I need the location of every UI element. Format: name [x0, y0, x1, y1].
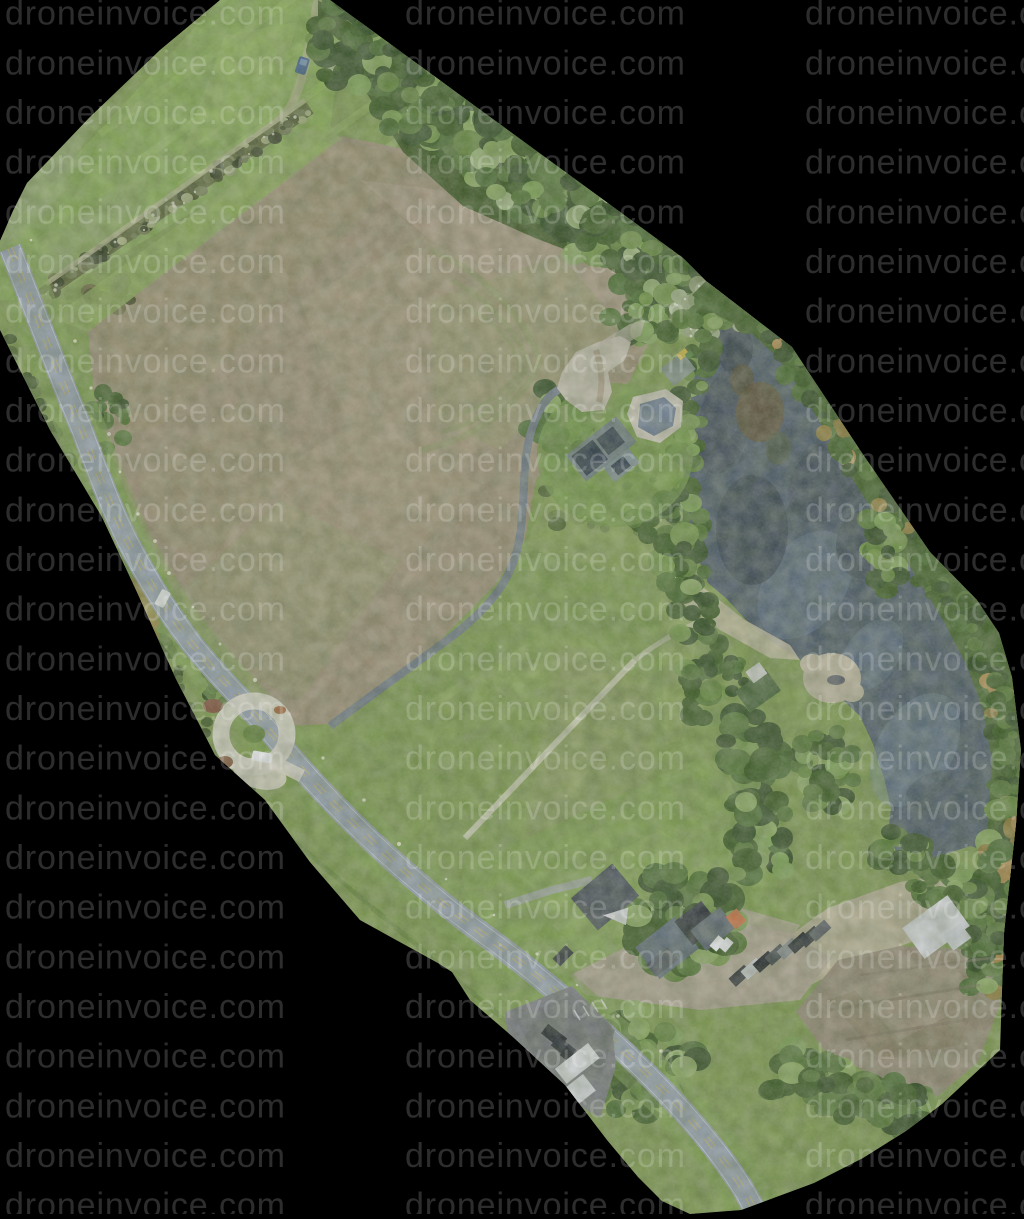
- svg-text:droneinvoice.com: droneinvoice.com: [405, 789, 686, 827]
- svg-text:droneinvoice.com: droneinvoice.com: [805, 1038, 1024, 1076]
- svg-text:droneinvoice.com: droneinvoice.com: [405, 640, 686, 678]
- svg-text:droneinvoice.com: droneinvoice.com: [405, 591, 686, 629]
- svg-text:droneinvoice.com: droneinvoice.com: [5, 541, 286, 579]
- svg-text:droneinvoice.com: droneinvoice.com: [5, 839, 286, 877]
- svg-text:droneinvoice.com: droneinvoice.com: [405, 541, 686, 579]
- svg-text:droneinvoice.com: droneinvoice.com: [5, 44, 286, 82]
- svg-text:droneinvoice.com: droneinvoice.com: [5, 789, 286, 827]
- svg-text:droneinvoice.com: droneinvoice.com: [805, 988, 1024, 1026]
- svg-text:droneinvoice.com: droneinvoice.com: [805, 640, 1024, 678]
- svg-text:droneinvoice.com: droneinvoice.com: [5, 392, 286, 430]
- svg-text:droneinvoice.com: droneinvoice.com: [805, 193, 1024, 231]
- svg-text:droneinvoice.com: droneinvoice.com: [5, 94, 286, 132]
- svg-text:droneinvoice.com: droneinvoice.com: [805, 243, 1024, 281]
- svg-text:droneinvoice.com: droneinvoice.com: [405, 442, 686, 480]
- svg-text:droneinvoice.com: droneinvoice.com: [405, 889, 686, 927]
- svg-text:droneinvoice.com: droneinvoice.com: [5, 293, 286, 331]
- svg-text:droneinvoice.com: droneinvoice.com: [405, 94, 686, 132]
- svg-text:droneinvoice.com: droneinvoice.com: [805, 491, 1024, 529]
- svg-text:droneinvoice.com: droneinvoice.com: [5, 1187, 286, 1214]
- svg-text:droneinvoice.com: droneinvoice.com: [405, 690, 686, 728]
- svg-text:droneinvoice.com: droneinvoice.com: [5, 144, 286, 182]
- svg-text:droneinvoice.com: droneinvoice.com: [805, 293, 1024, 331]
- svg-text:droneinvoice.com: droneinvoice.com: [805, 44, 1024, 82]
- svg-text:droneinvoice.com: droneinvoice.com: [405, 1187, 686, 1214]
- svg-text:droneinvoice.com: droneinvoice.com: [5, 342, 286, 380]
- svg-text:droneinvoice.com: droneinvoice.com: [5, 0, 286, 33]
- svg-text:droneinvoice.com: droneinvoice.com: [5, 1038, 286, 1076]
- svg-text:droneinvoice.com: droneinvoice.com: [5, 690, 286, 728]
- svg-text:droneinvoice.com: droneinvoice.com: [405, 293, 686, 331]
- svg-text:droneinvoice.com: droneinvoice.com: [805, 1087, 1024, 1125]
- svg-text:droneinvoice.com: droneinvoice.com: [805, 1187, 1024, 1214]
- svg-text:droneinvoice.com: droneinvoice.com: [805, 889, 1024, 927]
- svg-text:droneinvoice.com: droneinvoice.com: [805, 541, 1024, 579]
- svg-text:droneinvoice.com: droneinvoice.com: [5, 938, 286, 976]
- svg-text:droneinvoice.com: droneinvoice.com: [805, 442, 1024, 480]
- svg-text:droneinvoice.com: droneinvoice.com: [405, 342, 686, 380]
- svg-text:droneinvoice.com: droneinvoice.com: [5, 591, 286, 629]
- svg-text:droneinvoice.com: droneinvoice.com: [805, 1137, 1024, 1175]
- svg-text:droneinvoice.com: droneinvoice.com: [805, 0, 1024, 33]
- svg-text:droneinvoice.com: droneinvoice.com: [805, 789, 1024, 827]
- svg-text:droneinvoice.com: droneinvoice.com: [805, 144, 1024, 182]
- svg-text:droneinvoice.com: droneinvoice.com: [5, 491, 286, 529]
- svg-text:droneinvoice.com: droneinvoice.com: [405, 243, 686, 281]
- svg-text:droneinvoice.com: droneinvoice.com: [405, 988, 686, 1026]
- svg-text:droneinvoice.com: droneinvoice.com: [405, 193, 686, 231]
- svg-text:droneinvoice.com: droneinvoice.com: [5, 988, 286, 1026]
- svg-text:droneinvoice.com: droneinvoice.com: [5, 1137, 286, 1175]
- svg-text:droneinvoice.com: droneinvoice.com: [405, 144, 686, 182]
- svg-text:droneinvoice.com: droneinvoice.com: [5, 442, 286, 480]
- svg-text:droneinvoice.com: droneinvoice.com: [5, 740, 286, 778]
- svg-text:droneinvoice.com: droneinvoice.com: [5, 889, 286, 927]
- svg-text:droneinvoice.com: droneinvoice.com: [5, 193, 286, 231]
- svg-text:droneinvoice.com: droneinvoice.com: [405, 740, 686, 778]
- svg-text:droneinvoice.com: droneinvoice.com: [805, 740, 1024, 778]
- svg-text:droneinvoice.com: droneinvoice.com: [5, 243, 286, 281]
- svg-text:droneinvoice.com: droneinvoice.com: [405, 1137, 686, 1175]
- svg-text:droneinvoice.com: droneinvoice.com: [805, 690, 1024, 728]
- svg-text:droneinvoice.com: droneinvoice.com: [405, 839, 686, 877]
- svg-text:droneinvoice.com: droneinvoice.com: [405, 392, 686, 430]
- svg-text:droneinvoice.com: droneinvoice.com: [805, 591, 1024, 629]
- svg-text:droneinvoice.com: droneinvoice.com: [805, 392, 1024, 430]
- svg-text:droneinvoice.com: droneinvoice.com: [5, 640, 286, 678]
- svg-text:droneinvoice.com: droneinvoice.com: [405, 0, 686, 33]
- svg-text:droneinvoice.com: droneinvoice.com: [405, 938, 686, 976]
- svg-text:droneinvoice.com: droneinvoice.com: [5, 1087, 286, 1125]
- svg-text:droneinvoice.com: droneinvoice.com: [405, 491, 686, 529]
- svg-text:droneinvoice.com: droneinvoice.com: [405, 1087, 686, 1125]
- svg-text:droneinvoice.com: droneinvoice.com: [805, 342, 1024, 380]
- svg-text:droneinvoice.com: droneinvoice.com: [805, 938, 1024, 976]
- svg-text:droneinvoice.com: droneinvoice.com: [405, 44, 686, 82]
- svg-text:droneinvoice.com: droneinvoice.com: [805, 94, 1024, 132]
- svg-text:droneinvoice.com: droneinvoice.com: [805, 839, 1024, 877]
- svg-text:droneinvoice.com: droneinvoice.com: [405, 1038, 686, 1076]
